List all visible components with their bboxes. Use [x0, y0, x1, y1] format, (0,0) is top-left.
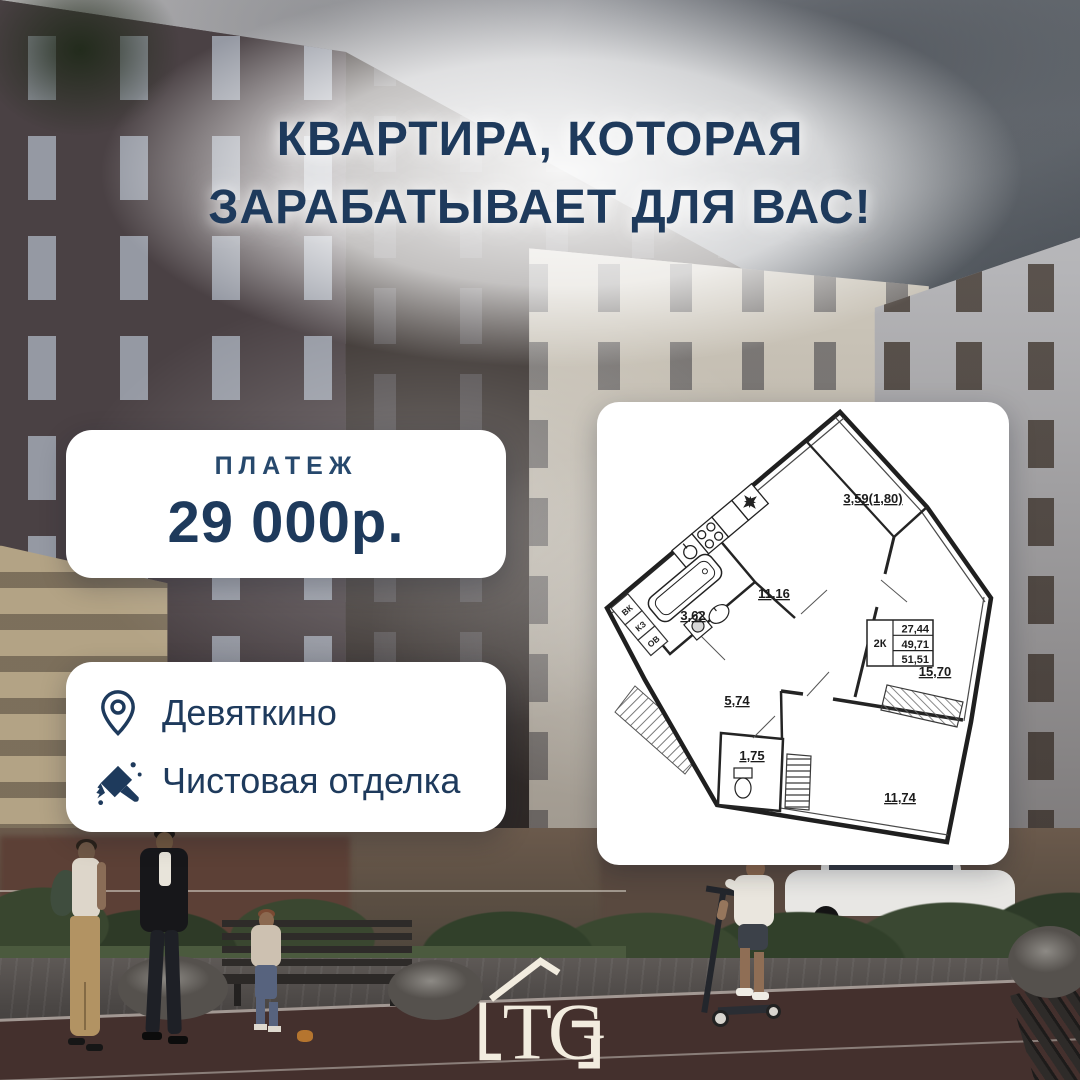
developer-logo: TG	[458, 948, 628, 1080]
floor-plan-card: ВК КЗ ОВ	[597, 402, 1009, 865]
feature-finishing-label: Чистовая отделка	[162, 760, 460, 802]
pedestrian-woman	[56, 842, 120, 1072]
feature-location: Девяткино	[92, 687, 506, 739]
spec-type: 2К	[874, 638, 887, 650]
headline-line-2: ЗАРАБАТЫВАЕТ ДЛЯ ВАС!	[0, 174, 1080, 242]
paint-brush-icon	[92, 755, 144, 807]
spec-table: 2К 27,44 49,71 51,51	[867, 620, 933, 666]
floor-plan: ВК КЗ ОВ	[597, 402, 1009, 865]
payment-label: ПЛАТЕЖ	[215, 452, 358, 481]
real-estate-ad-poster: КВАРТИРА, КОТОРАЯ ЗАРАБАТЫВАЕТ ДЛЯ ВАС! …	[0, 0, 1080, 1080]
spec-living-area: 27,44	[901, 624, 929, 636]
boy-on-scooter	[712, 858, 812, 1080]
room-label-hallway: 5,74	[724, 693, 750, 708]
room-label-wc: 1,75	[739, 748, 764, 763]
headline-line-1: КВАРТИРА, КОТОРАЯ	[0, 106, 1080, 174]
logo-text: TG	[503, 988, 604, 1077]
payment-card: ПЛАТЕЖ 29 000р.	[66, 430, 506, 578]
spec-area: 49,71	[901, 639, 929, 651]
toddler	[243, 912, 315, 1072]
payment-value: 29 000р.	[168, 489, 405, 556]
spec-total-area: 51,51	[901, 654, 929, 666]
room-label-kitchen: 11,16	[758, 586, 790, 601]
wardrobe-hall	[785, 754, 811, 810]
room-label-loggia: 3,59(1,80)	[843, 491, 902, 506]
room-label-bathroom: 3,62	[680, 608, 705, 623]
pedestrian-man	[128, 832, 208, 1072]
features-card: Девяткино Чистовая отделка	[66, 662, 506, 832]
feature-location-label: Девяткино	[162, 692, 337, 734]
headline: КВАРТИРА, КОТОРАЯ ЗАРАБАТЫВАЕТ ДЛЯ ВАС!	[0, 106, 1080, 242]
feature-finishing: Чистовая отделка	[92, 755, 506, 807]
toilet	[734, 768, 752, 798]
room-label-bedroom: 11,74	[884, 790, 917, 805]
location-pin-icon	[92, 687, 144, 739]
